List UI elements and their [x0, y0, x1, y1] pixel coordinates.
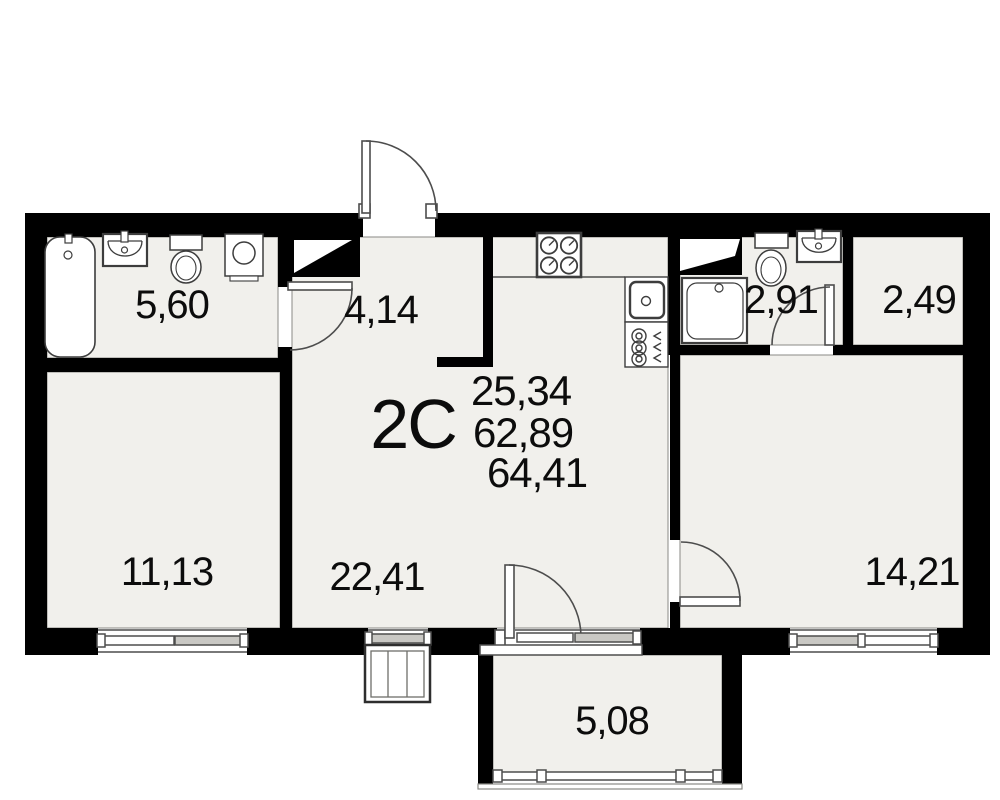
area-total-label: 64,41	[487, 452, 587, 494]
wall-wc-bottom-left	[668, 345, 770, 355]
wall-living-bedroomright	[670, 355, 680, 540]
room-label-wc: 2,91	[744, 280, 818, 320]
wall-storage-bottom	[853, 345, 963, 355]
wall-bottom-4	[640, 628, 790, 655]
bathtub-icon	[45, 234, 95, 357]
exterior-box	[365, 645, 430, 702]
apartment-type-label: 2С	[370, 389, 455, 459]
room-label-storage: 2,49	[882, 280, 956, 320]
stove-icon	[537, 233, 581, 277]
washing-machine-icon	[225, 234, 263, 281]
window-box-living	[365, 630, 431, 702]
wall-living-bedroomright-stub	[670, 602, 680, 628]
wall-balcony-right	[722, 632, 742, 785]
door-leaf	[825, 285, 834, 345]
wall-bathroom-right-stub	[278, 347, 292, 358]
wall-bottom-5	[937, 628, 990, 655]
vent-shaft-icon	[278, 237, 360, 277]
bath-sink-icon	[103, 231, 147, 266]
wall-bottom-1	[25, 628, 98, 655]
door-swing-arc	[366, 141, 436, 211]
wall-bottom-2	[247, 628, 368, 655]
room-label-bedroom-right: 14,21	[864, 552, 959, 592]
entrance-door	[359, 141, 437, 218]
kitchen-sink-icon	[625, 277, 668, 322]
room-label-balcony: 5,08	[575, 701, 649, 741]
area-living-label: 25,34	[471, 370, 571, 412]
wall-left-outer	[25, 213, 47, 655]
door-leaf	[680, 597, 740, 606]
balcony-sill	[480, 645, 642, 655]
floor-plan: 5,60 4,14 2,91 2,49 11,13 22,41 14,21 5,…	[0, 0, 1000, 800]
wall-balcony-left	[478, 655, 493, 785]
door-leaf	[362, 141, 370, 213]
room-label-bedroom-left: 11,13	[121, 552, 213, 592]
wall-kitchen-partition-v	[483, 237, 493, 357]
wall-wc-bottom-stub	[833, 345, 853, 355]
vent-shaft-icon	[668, 237, 742, 275]
balcony-outer-edge	[478, 784, 742, 789]
wall-bedroomleft-living	[280, 372, 292, 628]
area-usable-label: 62,89	[473, 412, 573, 454]
wall-top-left	[25, 213, 363, 237]
room-label-hallway: 4,14	[344, 290, 418, 330]
window-bedroom-left	[97, 630, 248, 652]
door-leaf	[505, 565, 514, 638]
riser-icon	[625, 322, 668, 367]
balcony-glazing	[478, 770, 742, 789]
door-leaf	[288, 282, 352, 290]
wall-bathroom-bottom	[25, 358, 292, 372]
window-bedroom-right	[789, 630, 938, 652]
wall-kitchen-partition-h	[437, 357, 493, 367]
shower-icon	[682, 278, 747, 343]
toilet-icon	[170, 235, 202, 283]
wc-sink-icon	[797, 229, 841, 262]
room-label-living-kitchen: 22,41	[329, 557, 424, 597]
room-label-bathroom: 5,60	[135, 285, 209, 325]
wall-top-right	[435, 213, 990, 237]
wall-right-outer	[963, 213, 990, 655]
wall-wc-storage	[843, 233, 853, 345]
